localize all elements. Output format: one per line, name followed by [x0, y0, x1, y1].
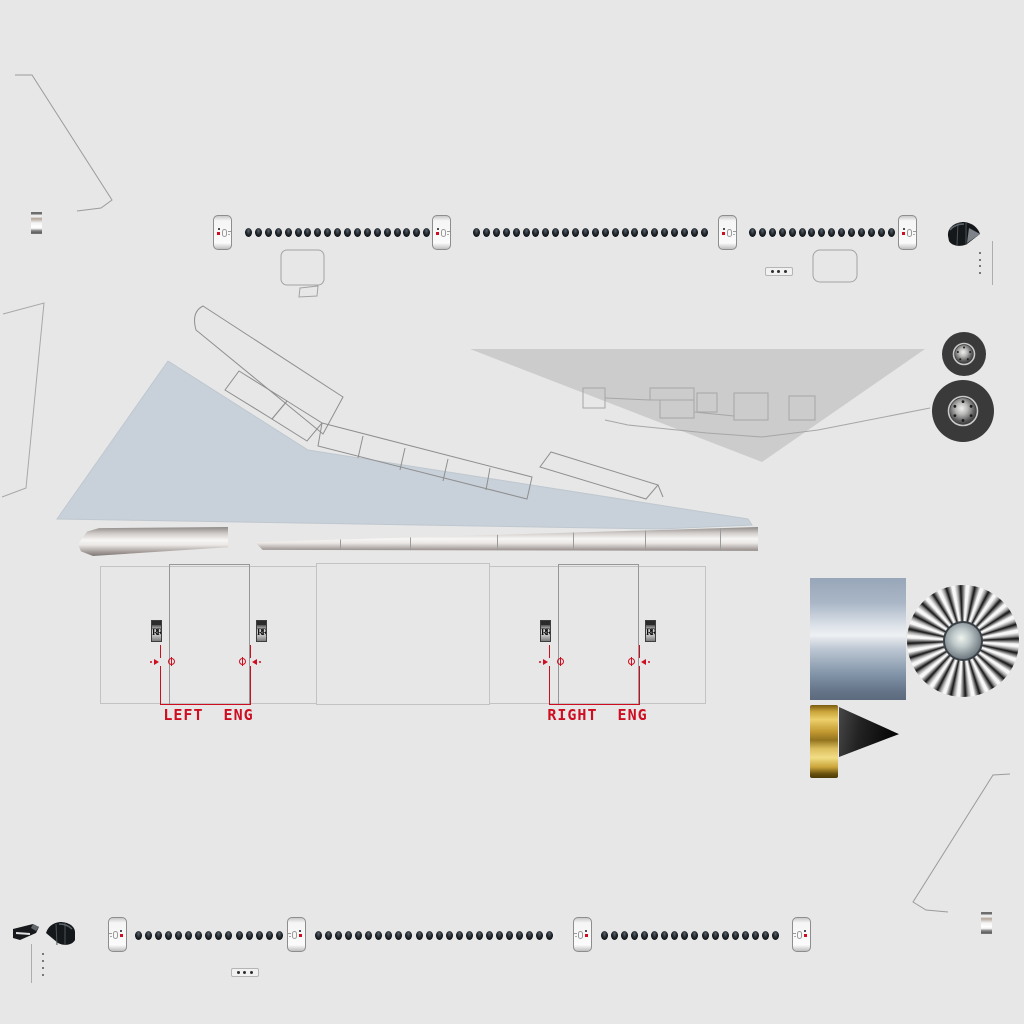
- cabin-window: [691, 228, 698, 237]
- cabin-window: [858, 228, 865, 237]
- passenger-door: [898, 215, 917, 250]
- cabin-window: [135, 931, 142, 940]
- cabin-window: [523, 228, 530, 237]
- alignment-dot: [539, 661, 541, 663]
- cabin-window: [621, 931, 628, 940]
- alignment-tick: [250, 645, 251, 658]
- door-marking: [578, 931, 583, 939]
- cabin-window: [405, 931, 412, 940]
- cabin-window: [602, 228, 609, 237]
- door-marking: [794, 936, 796, 937]
- door-marking: [288, 933, 291, 934]
- cabin-window: [473, 228, 480, 237]
- cabin-window: [651, 931, 658, 940]
- cabin-window: [456, 931, 463, 940]
- bracket-line: [549, 704, 640, 705]
- service-placard: [765, 267, 793, 276]
- door-marking: [292, 931, 297, 939]
- cabin-window: [395, 931, 402, 940]
- rivet-dot: [42, 974, 44, 976]
- placard-dot: [237, 971, 240, 974]
- door-markings: [288, 918, 305, 951]
- cabin-window: [702, 931, 709, 940]
- fin-outline-top-left: [15, 75, 112, 211]
- side-window-bottom: [13, 924, 39, 940]
- door-marking: [222, 229, 227, 237]
- cabin-window: [769, 228, 776, 237]
- door-markings: [719, 216, 736, 249]
- cabin-window: [276, 931, 283, 940]
- cabin-window: [592, 228, 599, 237]
- passenger-door: [432, 215, 451, 250]
- wheel: [932, 380, 994, 442]
- wheel-bolt: [962, 400, 965, 403]
- cabin-window: [255, 228, 262, 237]
- door-marking: [299, 930, 301, 932]
- right-engine-panel: RR RR RIGHT ENG: [489, 563, 706, 723]
- door-marking: [110, 936, 112, 937]
- datum-symbol: [168, 658, 175, 665]
- cabin-window: [246, 931, 253, 940]
- paint-swatch-bottom-right: [981, 912, 992, 934]
- cabin-window: [256, 931, 263, 940]
- cabin-window: [145, 931, 152, 940]
- alignment-arrow-right-icon: [154, 659, 159, 665]
- door-marking: [437, 228, 439, 230]
- bracket-line: [160, 666, 161, 705]
- wheel-bolt: [969, 351, 971, 353]
- door-marking: [441, 229, 446, 237]
- cabin-window: [611, 931, 618, 940]
- door-marking: [299, 934, 302, 937]
- cabin-window: [888, 228, 895, 237]
- door-marking: [913, 234, 915, 235]
- cabin-window: [878, 228, 885, 237]
- cabin-window: [295, 228, 302, 237]
- cabin-window: [542, 228, 549, 237]
- cabin-window: [732, 931, 739, 940]
- cabin-window: [394, 228, 401, 237]
- door-markings: [793, 918, 810, 951]
- alignment-tick: [160, 645, 161, 658]
- slat-flap-outlines: [195, 306, 663, 499]
- leading-edge-strip-inboard: [78, 527, 228, 556]
- cabin-window: [772, 931, 779, 940]
- door-marking: [218, 228, 220, 230]
- cabin-window: [779, 228, 786, 237]
- wing-and-outline-artwork: [0, 0, 1024, 1024]
- cabin-window: [582, 228, 589, 237]
- bracket-line: [250, 666, 251, 705]
- rivet-dot: [979, 265, 981, 267]
- bracket-line: [639, 666, 640, 705]
- door-marking: [733, 231, 736, 232]
- flap-track-outlines: [583, 388, 930, 437]
- nacelle-texture: [810, 578, 906, 700]
- door-marking: [797, 931, 802, 939]
- cabin-window: [236, 931, 243, 940]
- cabin-window: [641, 931, 648, 940]
- cabin-window: [532, 228, 539, 237]
- wing-lower-panel: [470, 349, 925, 462]
- left-engine-label: LEFT ENG: [100, 706, 317, 724]
- alignment-dot: [648, 661, 650, 663]
- cabin-window: [195, 931, 202, 940]
- door-marking: [804, 934, 807, 937]
- door-marking: [585, 934, 588, 937]
- cabin-window: [661, 228, 668, 237]
- door-marking: [804, 930, 806, 932]
- cabin-window: [403, 228, 410, 237]
- door-markings: [214, 216, 231, 249]
- wing-upper-skin: [57, 361, 752, 529]
- cabin-window: [344, 228, 351, 237]
- placard-dot: [784, 270, 787, 273]
- passenger-door: [108, 917, 127, 952]
- fin-outline-bottom-right: [913, 774, 1010, 912]
- cabin-window: [631, 228, 638, 237]
- cabin-window: [712, 931, 719, 940]
- door-marking: [109, 933, 112, 934]
- right-engine-label: RIGHT ENG: [489, 706, 706, 724]
- door-marking: [733, 234, 735, 235]
- engine-inner-panel: [169, 564, 250, 705]
- passenger-door: [792, 917, 811, 952]
- rivet-dot: [42, 953, 44, 955]
- cabin-window: [742, 931, 749, 940]
- cabin-window: [275, 228, 282, 237]
- cabin-window: [612, 228, 619, 237]
- cabin-window: [245, 228, 252, 237]
- paint-swatch-top-left: [31, 212, 42, 234]
- cabin-window: [789, 228, 796, 237]
- cabin-window: [701, 228, 708, 237]
- cabin-window: [486, 931, 493, 940]
- cabin-window: [536, 931, 543, 940]
- cabin-window: [354, 228, 361, 237]
- placard-dot: [771, 270, 774, 273]
- cabin-window: [496, 931, 503, 940]
- rivet-dot: [979, 252, 981, 254]
- cabin-window: [266, 931, 273, 940]
- cabin-window: [185, 931, 192, 940]
- cabin-window: [622, 228, 629, 237]
- cabin-window: [562, 228, 569, 237]
- cabin-window: [335, 931, 342, 940]
- cabin-window: [513, 228, 520, 237]
- door-marking: [727, 229, 732, 237]
- seam-line: [31, 944, 32, 983]
- passenger-door: [573, 917, 592, 952]
- wheel-bolt: [970, 405, 973, 408]
- cabin-window: [205, 931, 212, 940]
- placard-dot: [243, 971, 246, 974]
- wheel-bolt: [962, 419, 965, 422]
- cabin-window: [681, 931, 688, 940]
- alignment-arrow-right-icon: [543, 659, 548, 665]
- door-marking: [903, 228, 905, 230]
- cabin-window: [868, 228, 875, 237]
- door-marking: [228, 234, 230, 235]
- cabin-window: [385, 931, 392, 940]
- cabin-window: [651, 228, 658, 237]
- cabin-window: [423, 228, 430, 237]
- cabin-window: [416, 931, 423, 940]
- cabin-window: [345, 931, 352, 940]
- cabin-window: [749, 228, 756, 237]
- cabin-window: [503, 228, 510, 237]
- cabin-window: [641, 228, 648, 237]
- stabilizer-outline-left: [2, 303, 44, 497]
- cabin-window: [374, 228, 381, 237]
- cabin-window: [828, 228, 835, 237]
- cabin-window: [516, 931, 523, 940]
- cabin-window: [215, 931, 222, 940]
- cabin-window: [552, 228, 559, 237]
- door-marking: [907, 229, 912, 237]
- cabin-window: [671, 931, 678, 940]
- wheel-bolt: [967, 358, 969, 360]
- placard-dot: [777, 270, 780, 273]
- cabin-window: [671, 228, 678, 237]
- rolls-royce-badge: RR: [645, 620, 656, 642]
- rolls-royce-badge: RR: [540, 620, 551, 642]
- alignment-tick: [549, 645, 550, 658]
- datum-symbol: [239, 658, 246, 665]
- cabin-window: [483, 228, 490, 237]
- alignment-tick: [639, 645, 640, 658]
- turbine-fan: [907, 585, 1019, 697]
- seam-line: [992, 241, 993, 285]
- placard-dot: [250, 971, 253, 974]
- door-marking: [722, 232, 725, 235]
- center-pylon-panel: [316, 563, 490, 705]
- door-marking: [574, 933, 577, 934]
- door-marking: [585, 930, 587, 932]
- cabin-window: [681, 228, 688, 237]
- cabin-window: [315, 931, 322, 940]
- cabin-window: [446, 931, 453, 940]
- passenger-door: [213, 215, 232, 250]
- cabin-window: [818, 228, 825, 237]
- passenger-door: [287, 917, 306, 952]
- cabin-window: [691, 931, 698, 940]
- cabin-window: [631, 931, 638, 940]
- wheel-bolt: [970, 414, 973, 417]
- door-marking: [289, 936, 291, 937]
- cabin-window: [155, 931, 162, 940]
- door-markings: [574, 918, 591, 951]
- door-marking: [217, 232, 220, 235]
- cabin-window: [334, 228, 341, 237]
- cabin-window: [325, 931, 332, 940]
- cabin-window: [759, 228, 766, 237]
- cabin-window: [848, 228, 855, 237]
- fan-spinner-hub: [943, 621, 983, 661]
- cabin-window: [265, 228, 272, 237]
- cabin-window: [506, 931, 513, 940]
- wheel-bolt: [953, 405, 956, 408]
- rivet-dot: [979, 259, 981, 261]
- cabin-window: [426, 931, 433, 940]
- wheel: [942, 332, 986, 376]
- door-marking: [902, 232, 905, 235]
- door-marking: [447, 231, 450, 232]
- cabin-window: [165, 931, 172, 940]
- alignment-dot: [259, 661, 261, 663]
- alignment-dot: [150, 661, 152, 663]
- door-marking: [575, 936, 577, 937]
- left-engine-panel: RR RR LEFT ENG: [100, 563, 317, 723]
- texture-sheet: RR RR LEFT ENG RR RR RIGHT ENG: [0, 0, 1024, 1024]
- door-markings: [899, 216, 916, 249]
- cabin-window: [365, 931, 372, 940]
- door-marking: [913, 231, 916, 232]
- engine-inner-panel: [558, 564, 639, 705]
- cabin-window: [413, 228, 420, 237]
- alignment-arrow-left-icon: [252, 659, 257, 665]
- bracket-line: [160, 704, 251, 705]
- cabin-window: [476, 931, 483, 940]
- tail-cone: [839, 706, 899, 758]
- cabin-window: [355, 931, 362, 940]
- passenger-door: [718, 215, 737, 250]
- door-marking: [447, 234, 449, 235]
- door-marking: [113, 931, 118, 939]
- cabin-window: [175, 931, 182, 940]
- windshield-top: [948, 222, 980, 246]
- door-markings: [433, 216, 450, 249]
- cabin-window: [384, 228, 391, 237]
- rolls-royce-badge: RR: [151, 620, 162, 642]
- bracket-line: [549, 666, 550, 705]
- rivet-dot: [42, 967, 44, 969]
- cabin-window: [722, 931, 729, 940]
- wheel-bolt: [953, 414, 956, 417]
- rolls-royce-badge: RR: [256, 620, 267, 642]
- windshield-bottom: [46, 922, 75, 945]
- cabin-window: [375, 931, 382, 940]
- door-marking: [228, 231, 231, 232]
- cabin-window: [364, 228, 371, 237]
- landing-gear-wheels: [932, 332, 994, 442]
- cabin-window: [838, 228, 845, 237]
- cabin-window: [466, 931, 473, 940]
- door-marking: [120, 934, 123, 937]
- cabin-window: [436, 931, 443, 940]
- wheel-bolt: [963, 347, 965, 349]
- cabin-window: [808, 228, 815, 237]
- cabin-window: [546, 931, 553, 940]
- datum-symbol: [628, 658, 635, 665]
- wheel-bolt: [959, 358, 961, 360]
- cabin-window: [752, 931, 759, 940]
- datum-symbol: [557, 658, 564, 665]
- wheel-bolt: [957, 351, 959, 353]
- cabin-window: [526, 931, 533, 940]
- cabin-window: [762, 931, 769, 940]
- cabin-window: [601, 931, 608, 940]
- exhaust-ring-gold: [810, 705, 838, 778]
- cabin-window: [572, 228, 579, 237]
- cabin-window: [285, 228, 292, 237]
- door-marking: [120, 930, 122, 932]
- service-placard: [231, 968, 259, 977]
- cabin-window: [304, 228, 311, 237]
- rivet-dot: [42, 960, 44, 962]
- cabin-window: [661, 931, 668, 940]
- leading-edge-strip-outboard: [255, 527, 758, 553]
- cabin-window: [314, 228, 321, 237]
- rivet-dot: [979, 272, 981, 274]
- cabin-window: [799, 228, 806, 237]
- door-markings: [109, 918, 126, 951]
- door-marking: [723, 228, 725, 230]
- cabin-window: [324, 228, 331, 237]
- door-marking: [436, 232, 439, 235]
- cabin-window: [225, 931, 232, 940]
- door-marking: [793, 933, 796, 934]
- cabin-window: [493, 228, 500, 237]
- alignment-arrow-left-icon: [641, 659, 646, 665]
